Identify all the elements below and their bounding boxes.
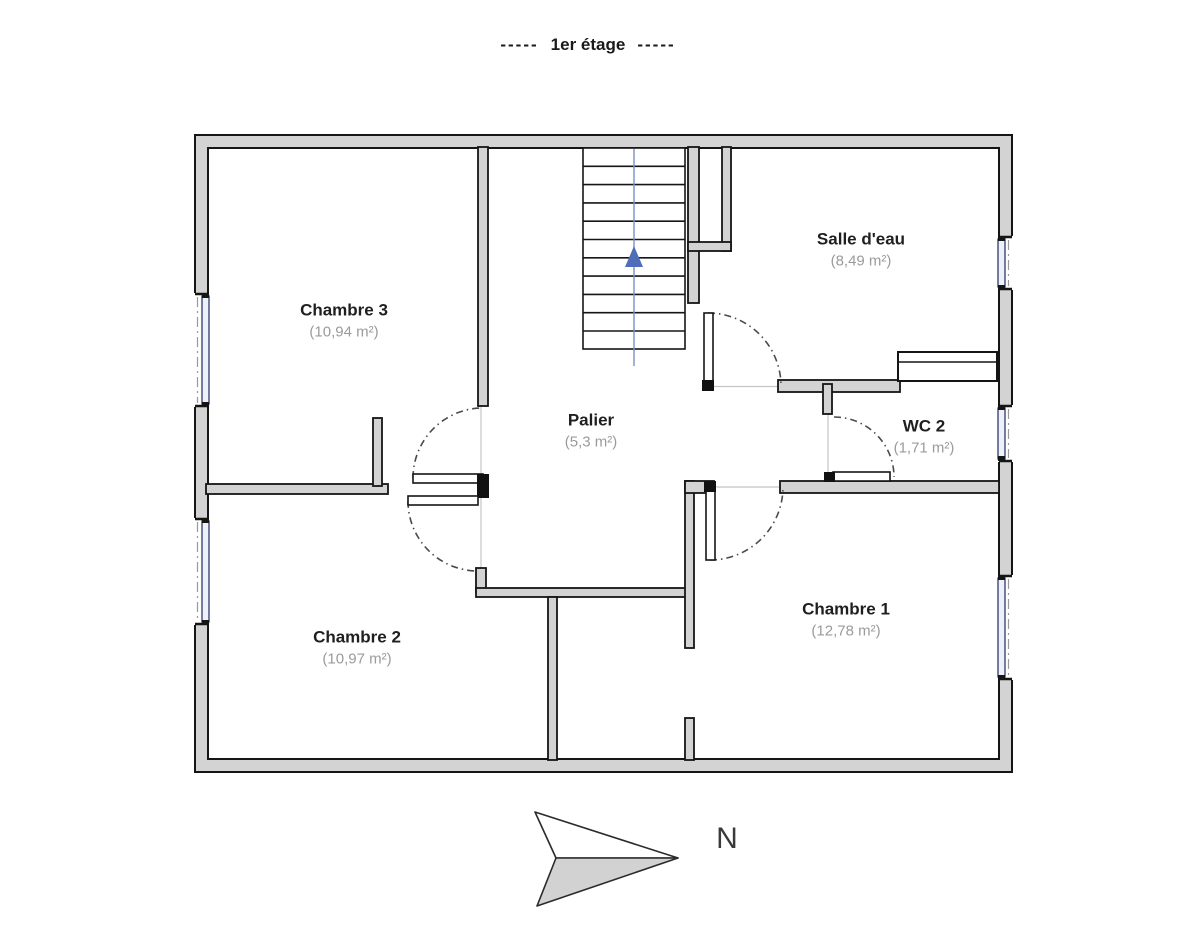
compass-label: N bbox=[716, 822, 738, 856]
room-label-salle-d-eau: Salle d'eau (8,49 m²) bbox=[817, 227, 905, 270]
room-area: (1,71 m²) bbox=[894, 438, 955, 458]
room-label-chambre-3: Chambre 3 (10,94 m²) bbox=[300, 298, 388, 341]
room-name: Chambre 1 bbox=[802, 597, 890, 621]
room-name: Palier bbox=[565, 408, 618, 432]
door-salle-d-eau bbox=[702, 313, 781, 391]
title-right-dashes: ----- bbox=[637, 35, 675, 54]
room-name: WC 2 bbox=[894, 414, 955, 438]
staircase bbox=[583, 148, 685, 366]
floor-plan-canvas: -----1er étage----- Chambre 3 (10,94 m²)… bbox=[0, 0, 1189, 950]
door-wc-2 bbox=[824, 417, 894, 482]
room-area: (10,97 m²) bbox=[313, 649, 401, 669]
door-chambre-2 bbox=[408, 496, 478, 571]
room-area: (5,3 m²) bbox=[565, 432, 618, 452]
room-name: Chambre 2 bbox=[313, 625, 401, 649]
room-label-chambre-1: Chambre 1 (12,78 m²) bbox=[802, 597, 890, 640]
room-label-wc-2: WC 2 (1,71 m²) bbox=[894, 414, 955, 457]
room-name: Chambre 3 bbox=[300, 298, 388, 322]
door-chambre-1 bbox=[704, 481, 783, 560]
north-arrow-icon bbox=[535, 812, 678, 906]
room-area: (12,78 m²) bbox=[802, 621, 890, 641]
room-area: (10,94 m²) bbox=[300, 322, 388, 342]
room-area: (8,49 m²) bbox=[817, 251, 905, 271]
door-chambre-3 bbox=[413, 408, 483, 483]
threshold-lines bbox=[481, 387, 828, 569]
floor-title: -----1er étage----- bbox=[488, 35, 687, 55]
room-label-palier: Palier (5,3 m²) bbox=[565, 408, 618, 451]
room-name: Salle d'eau bbox=[817, 227, 905, 251]
bathroom-fixture bbox=[898, 352, 997, 381]
floor-plan-drawing bbox=[0, 0, 1189, 950]
title-text: 1er étage bbox=[551, 35, 626, 54]
room-label-chambre-2: Chambre 2 (10,97 m²) bbox=[313, 625, 401, 668]
title-left-dashes: ----- bbox=[500, 35, 538, 54]
